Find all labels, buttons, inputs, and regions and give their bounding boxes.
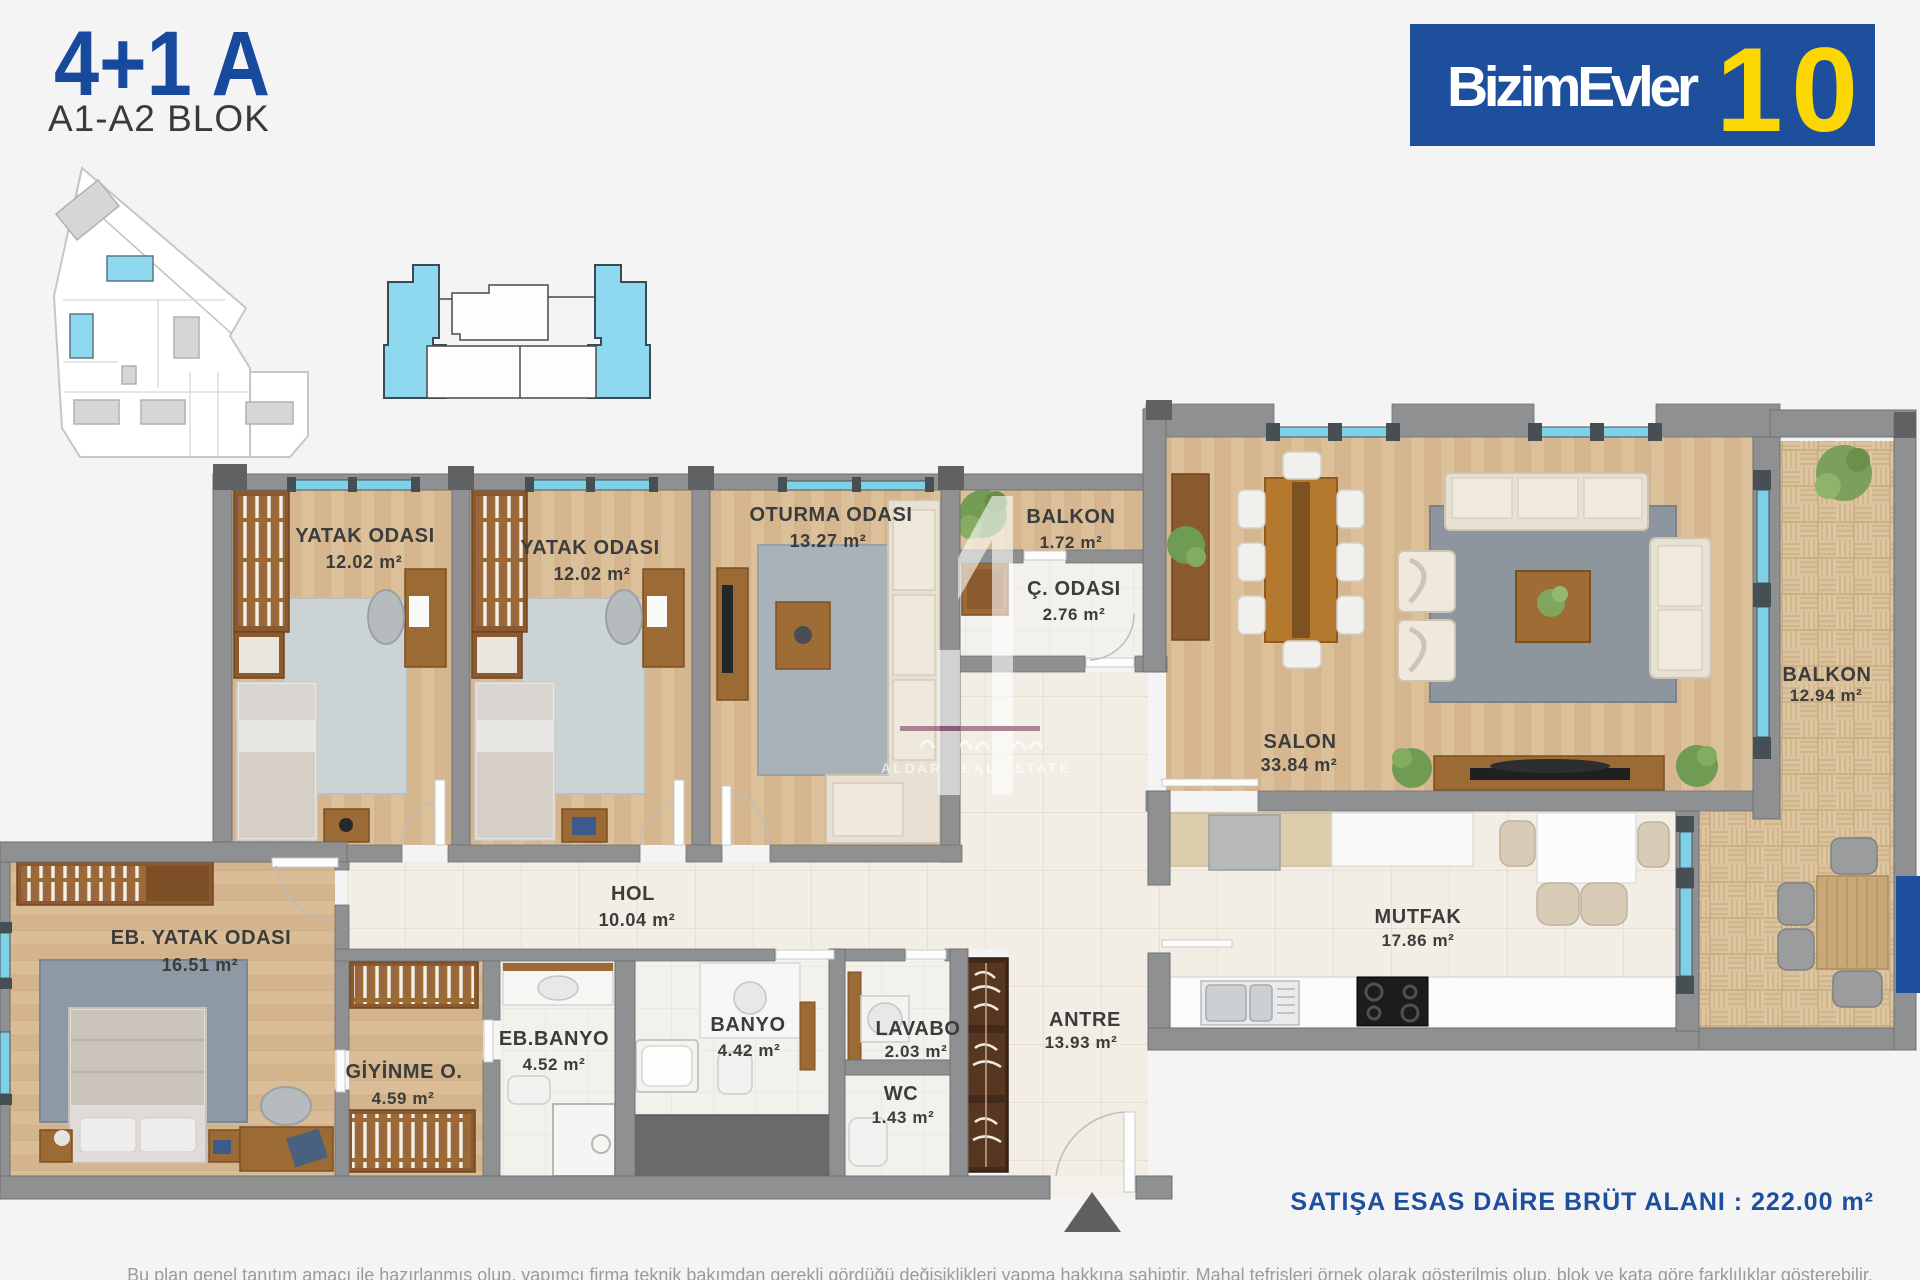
svg-text:BALKON: BALKON (1026, 506, 1115, 528)
svg-text:12.02 m²: 12.02 m² (554, 564, 631, 584)
svg-text:2.03 m²: 2.03 m² (885, 1042, 948, 1061)
svg-text:2.76 m²: 2.76 m² (1043, 605, 1106, 624)
svg-text:1.72 m²: 1.72 m² (1040, 533, 1103, 552)
svg-text:16.51 m²: 16.51 m² (162, 955, 239, 975)
svg-text:EB. YATAK ODASI: EB. YATAK ODASI (111, 927, 292, 949)
svg-text:Ç. ODASI: Ç. ODASI (1027, 578, 1121, 600)
svg-text:10.04 m²: 10.04 m² (599, 910, 676, 930)
svg-text:MUTFAK: MUTFAK (1375, 906, 1462, 928)
svg-text:EB.BANYO: EB.BANYO (499, 1028, 609, 1050)
svg-text:17.86 m²: 17.86 m² (1382, 931, 1455, 950)
svg-text:33.84 m²: 33.84 m² (1261, 755, 1338, 775)
svg-text:ANTRE: ANTRE (1049, 1009, 1121, 1031)
svg-text:SATIŞA ESAS DAİRE BRÜT ALANI :: SATIŞA ESAS DAİRE BRÜT ALANI : 222.00 m² (1290, 1187, 1874, 1216)
svg-text:1.43 m²: 1.43 m² (872, 1108, 935, 1127)
svg-text:4.59 m²: 4.59 m² (372, 1089, 435, 1108)
svg-text:SALON: SALON (1264, 731, 1337, 753)
svg-text:13.93 m²: 13.93 m² (1045, 1033, 1118, 1052)
svg-text:13.27 m²: 13.27 m² (790, 531, 867, 551)
svg-text:YATAK ODASI: YATAK ODASI (520, 537, 660, 559)
svg-text:12.94 m²: 12.94 m² (1790, 686, 1863, 705)
svg-text:12.02 m²: 12.02 m² (326, 552, 403, 572)
svg-text:BALKON: BALKON (1782, 664, 1871, 686)
svg-text:Bu plan genel tanıtım amacı il: Bu plan genel tanıtım amacı ile hazırlan… (127, 1265, 1873, 1280)
svg-text:OTURMA ODASI: OTURMA ODASI (749, 504, 912, 526)
svg-text:4.52 m²: 4.52 m² (523, 1055, 586, 1074)
svg-text:YATAK ODASI: YATAK ODASI (295, 525, 435, 547)
svg-text:WC: WC (884, 1083, 919, 1105)
svg-text:A1-A2 BLOK: A1-A2 BLOK (48, 98, 270, 139)
svg-text:HOL: HOL (611, 883, 655, 905)
svg-text:4.42 m²: 4.42 m² (718, 1041, 781, 1060)
svg-text:BizimEvler: BizimEvler (1447, 55, 1699, 119)
svg-text:LAVABO: LAVABO (875, 1018, 960, 1040)
svg-text:BANYO: BANYO (710, 1014, 785, 1036)
svg-text:ALDAR REAL ESTATE: ALDAR REAL ESTATE (881, 760, 1071, 776)
svg-text:GİYİNME O.: GİYİNME O. (345, 1060, 462, 1083)
